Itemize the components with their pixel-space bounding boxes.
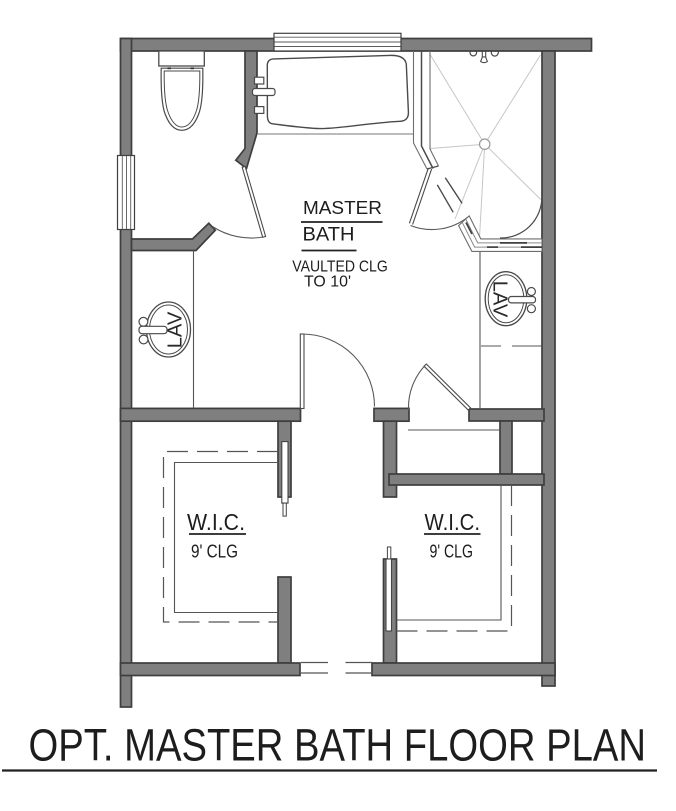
svg-text:MASTER: MASTER	[303, 197, 382, 218]
svg-text:BATH: BATH	[303, 225, 355, 246]
svg-text:9' CLG: 9' CLG	[430, 541, 474, 562]
svg-text:W.I.C.: W.I.C.	[425, 509, 481, 535]
svg-text:9' CLG: 9' CLG	[191, 541, 238, 562]
svg-text:W.I.C.: W.I.C.	[187, 509, 245, 535]
svg-text:OPT. MASTER BATH FLOOR PLAN: OPT. MASTER BATH FLOOR PLAN	[29, 720, 647, 771]
svg-text:TO 10': TO 10'	[304, 274, 351, 291]
